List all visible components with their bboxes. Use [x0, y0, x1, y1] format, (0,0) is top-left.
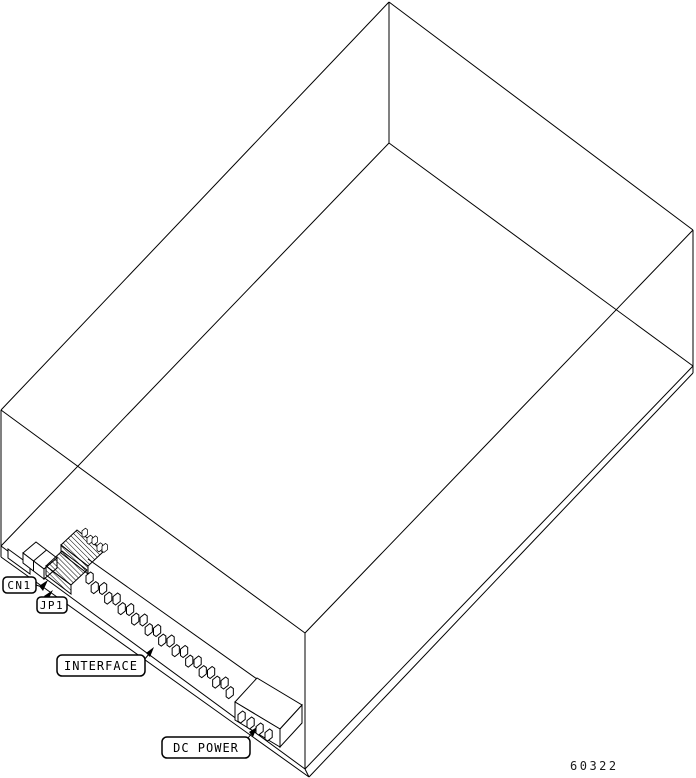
callout-dc-power: DC POWER	[162, 727, 257, 758]
connector-pin	[132, 613, 139, 625]
connector-pin	[226, 687, 233, 699]
connector-pin	[100, 583, 107, 595]
connector-pin	[172, 645, 179, 657]
jp1-label: JP1	[40, 599, 64, 612]
connector-pin	[102, 543, 107, 552]
connector-pin	[213, 676, 220, 688]
cn1-label: CN1	[7, 579, 31, 592]
interface-connector-pin-row	[86, 572, 233, 699]
connector-pin	[159, 634, 166, 646]
connector-pin	[186, 655, 193, 667]
connector-pin	[145, 624, 152, 636]
drive-isometric-diagram: CN1 JP1 INTERFACE DC POWER 60322	[0, 0, 696, 778]
interface-label: INTERFACE	[64, 659, 138, 673]
connector-pin	[82, 528, 87, 537]
box-vertical-edges	[1, 2, 693, 769]
figure-number: 60322	[570, 759, 619, 773]
connector-pin	[118, 603, 125, 615]
connector-pin	[113, 593, 120, 605]
callout-cn1: CN1	[3, 577, 48, 593]
connector-pin	[181, 646, 188, 658]
connector-pin	[127, 604, 134, 616]
connector-pin	[199, 666, 206, 678]
figure-canvas: CN1 JP1 INTERFACE DC POWER 60322	[0, 0, 696, 778]
box-top-edges	[1, 2, 693, 633]
dc-power-label: DC POWER	[173, 741, 239, 755]
connector-pin	[221, 677, 228, 689]
connector-pin	[105, 592, 112, 604]
connector-pin	[194, 656, 201, 668]
callout-interface: INTERFACE	[57, 647, 154, 676]
connector-pin	[167, 635, 174, 647]
connector-pin	[92, 536, 97, 545]
connector-pin	[208, 667, 215, 679]
connector-pin	[91, 582, 98, 594]
connector-pin	[140, 614, 147, 626]
connector-pin	[154, 625, 161, 637]
